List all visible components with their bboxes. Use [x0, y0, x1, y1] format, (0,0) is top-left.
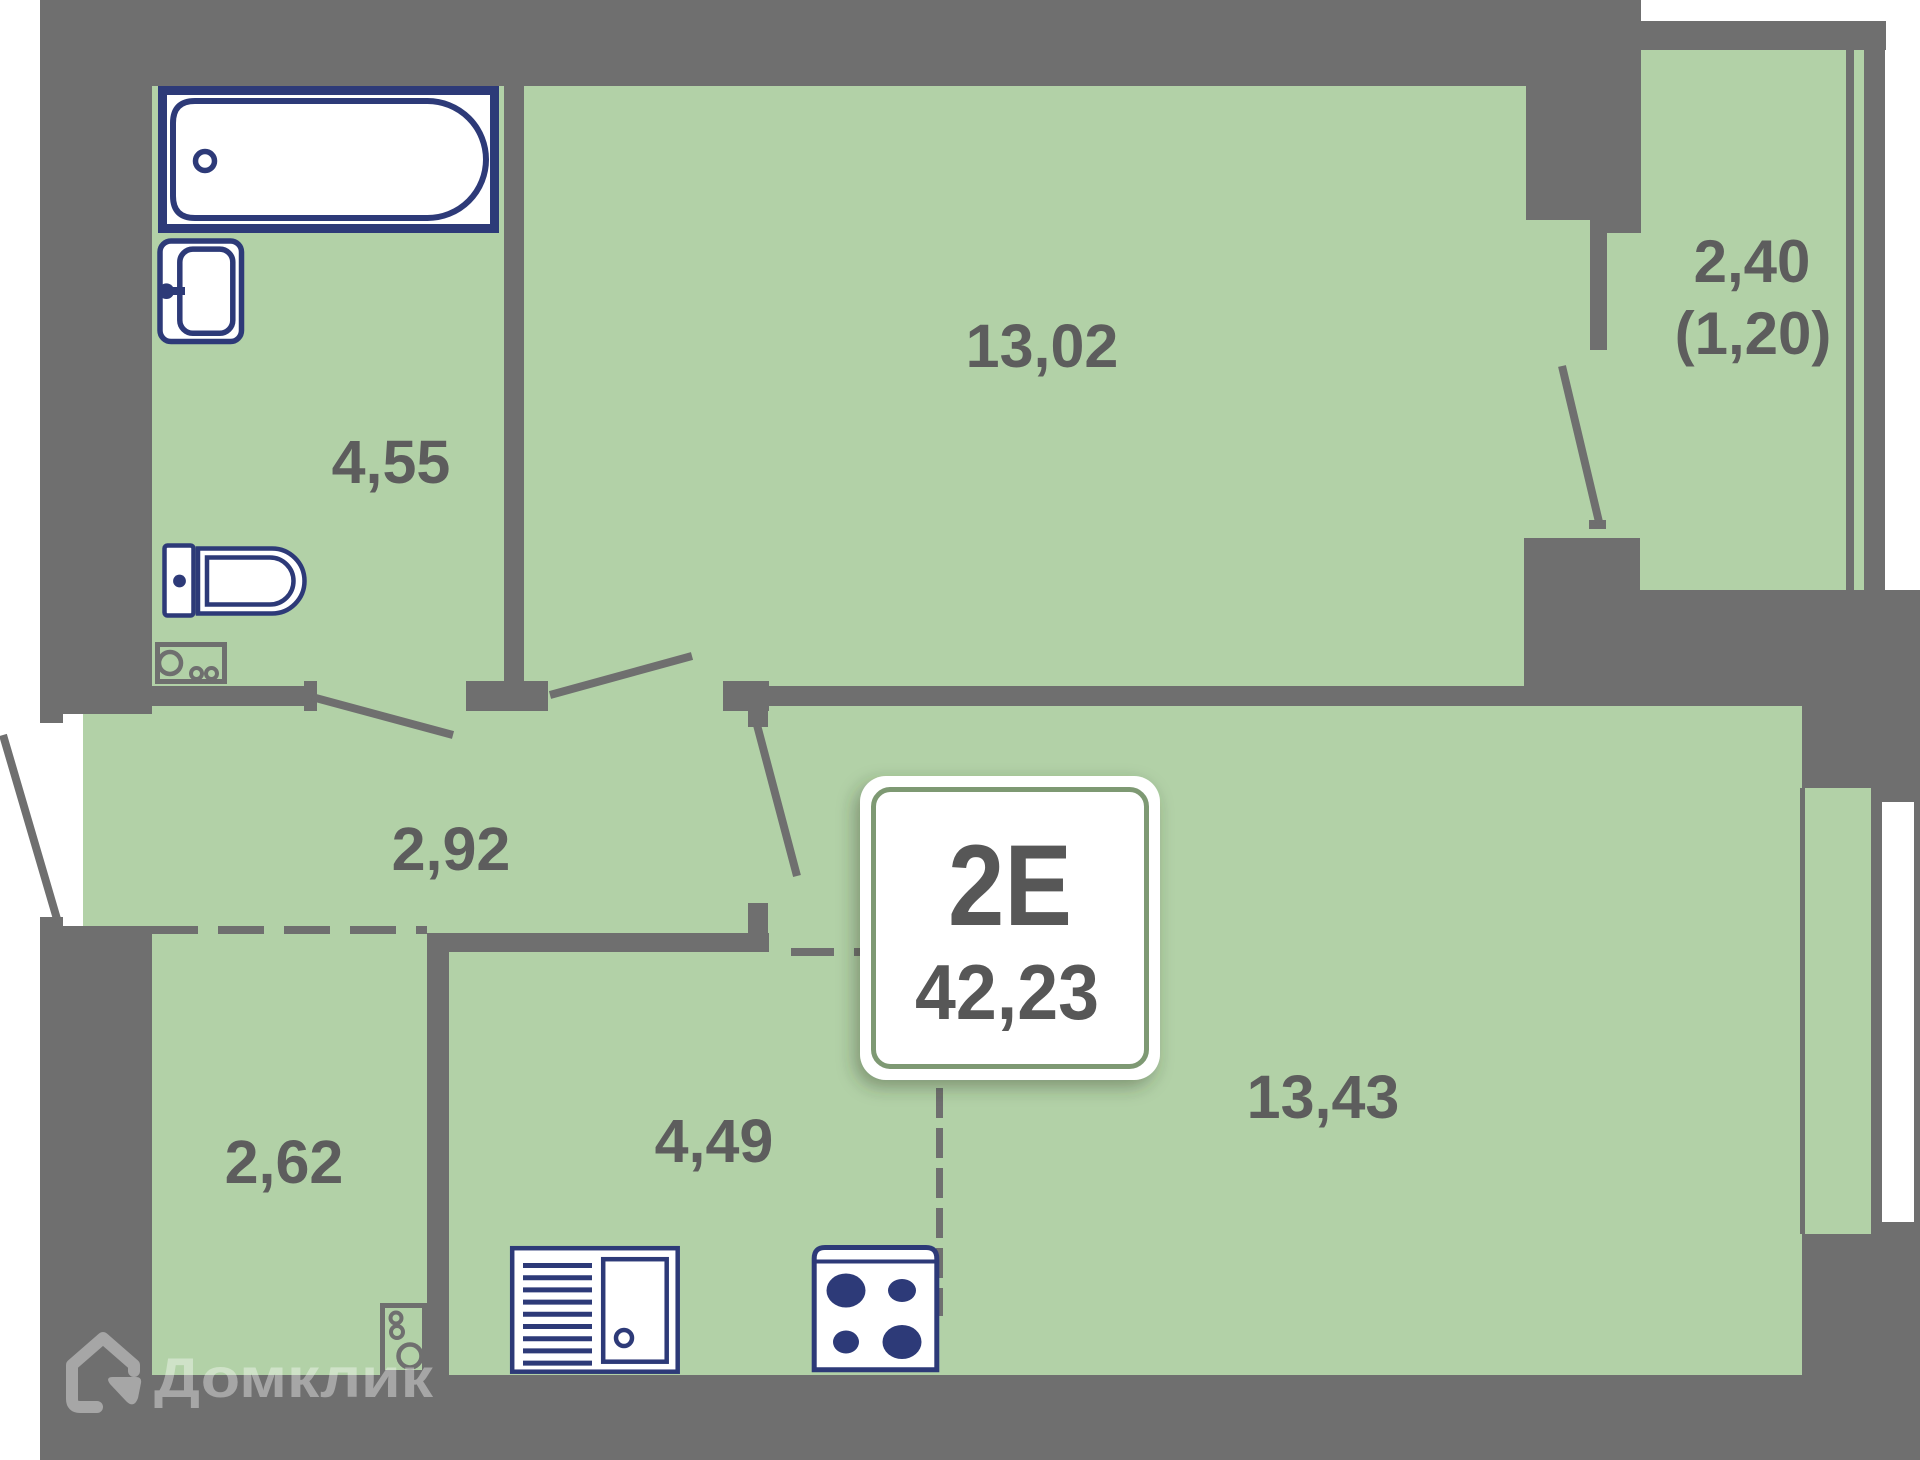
svg-text:2E: 2E	[948, 822, 1072, 950]
svg-text:42,23: 42,23	[915, 948, 1099, 1036]
svg-text:2,40: 2,40	[1694, 228, 1811, 295]
svg-text:Домклик: Домклик	[154, 1346, 434, 1409]
svg-text:2,92: 2,92	[392, 815, 511, 883]
svg-text:2,62: 2,62	[225, 1128, 344, 1196]
svg-text:(1,20): (1,20)	[1675, 300, 1832, 367]
svg-text:4,49: 4,49	[655, 1107, 774, 1175]
svg-text:13,43: 13,43	[1247, 1063, 1400, 1131]
svg-text:4,55: 4,55	[332, 428, 451, 496]
svg-text:13,02: 13,02	[966, 312, 1119, 380]
